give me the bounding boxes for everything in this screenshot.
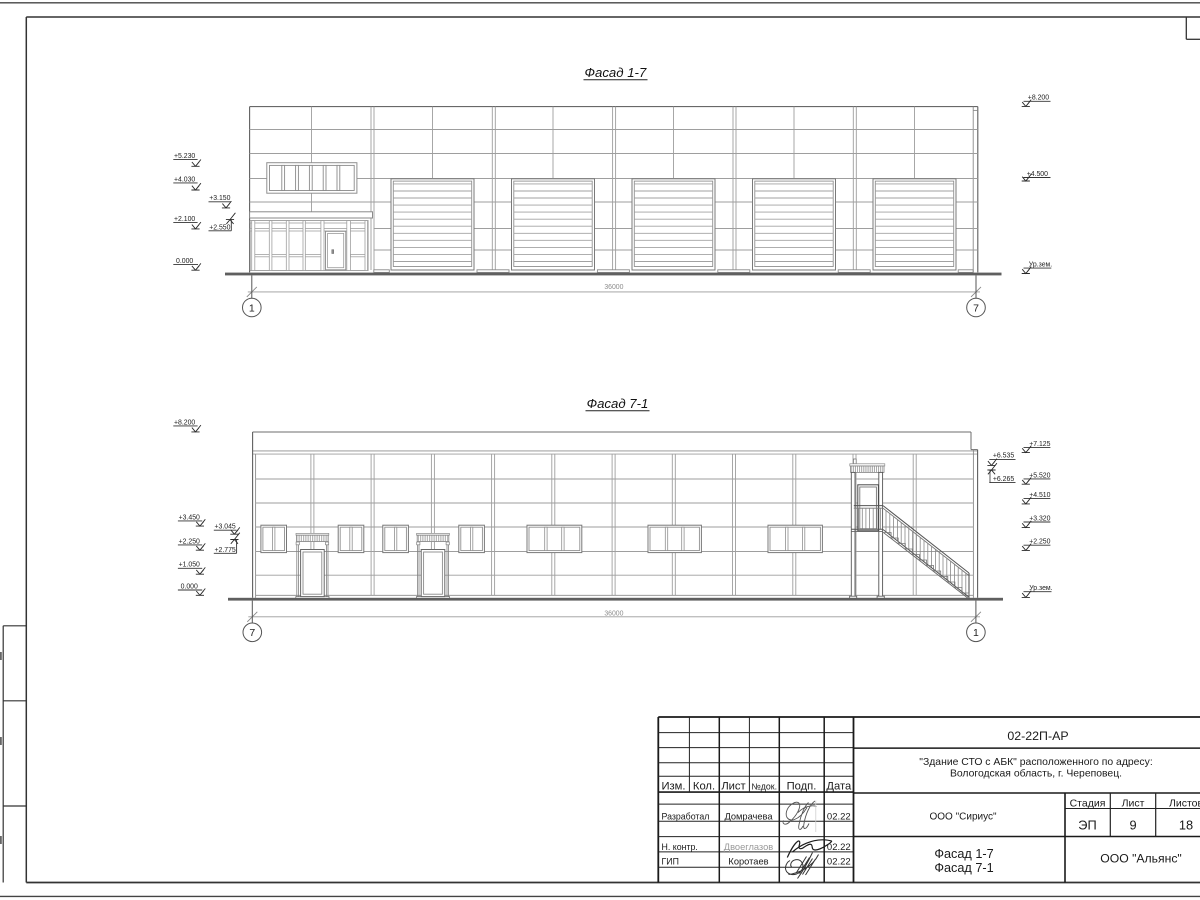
svg-text:Стадия: Стадия [1070,797,1106,809]
svg-text:Фасад 7-1: Фасад 7-1 [587,396,649,411]
svg-text:18: 18 [1179,818,1193,833]
svg-text:+3.450: +3.450 [179,514,200,521]
svg-text:Подп.: Подп. [787,780,817,792]
svg-text:Лист: Лист [1122,797,1145,809]
svg-text:02-22П-АР: 02-22П-АР [1007,729,1068,743]
svg-text:Н. контр.: Н. контр. [662,842,698,852]
svg-text:ЭП: ЭП [1078,818,1096,833]
svg-text:Дата: Дата [826,780,852,792]
svg-text:Листов: Листов [1169,797,1200,809]
svg-text:1: 1 [973,627,979,639]
svg-text:Двоеглазов: Двоеглазов [724,842,773,852]
svg-text:ООО "Альянс": ООО "Альянс" [1100,852,1182,866]
svg-text:№док.: №док. [751,782,777,792]
svg-text:ООО "Сириус": ООО "Сириус" [929,812,997,823]
svg-text:7: 7 [249,627,255,639]
svg-text:Фасад 1-7: Фасад 1-7 [585,65,647,80]
svg-text:Ур.зем.: Ур.зем. [1029,262,1052,269]
svg-text:Ур.зем.: Ур.зем. [1029,585,1052,592]
svg-text:+2.775: +2.775 [215,547,236,554]
svg-text:9: 9 [1129,818,1136,833]
svg-text:Вологодская область, г. Черепо: Вологодская область, г. Череповец. [950,768,1122,780]
svg-text:+5.230: +5.230 [174,153,195,160]
svg-text:+4.510: +4.510 [1029,492,1050,499]
svg-text:7: 7 [973,302,979,314]
svg-text:+4.030: +4.030 [174,176,195,183]
svg-text:36000: 36000 [604,610,623,617]
svg-text:1: 1 [249,302,255,314]
svg-text:+2.250: +2.250 [179,538,200,545]
svg-text:+6.535: +6.535 [993,453,1014,460]
svg-text:+4.500: +4.500 [1027,171,1048,178]
svg-text:+2.250: +2.250 [1029,539,1050,546]
svg-text:+3.150: +3.150 [209,195,230,202]
svg-text:+7.125: +7.125 [1029,441,1050,448]
svg-text:ГИП: ГИП [662,856,679,866]
svg-text:+8.200: +8.200 [174,419,195,426]
svg-text:02.22: 02.22 [827,812,851,823]
svg-text:Кол.: Кол. [693,780,715,792]
svg-text:36000: 36000 [604,284,623,291]
svg-text:Лист: Лист [721,780,745,792]
svg-text:"Здание СТО с АБК" расположенн: "Здание СТО с АБК" расположенного по адр… [919,757,1152,768]
svg-text:+8.200: +8.200 [1028,95,1049,102]
svg-text:+1.050: +1.050 [179,562,200,569]
svg-text:+6.265: +6.265 [993,476,1014,483]
svg-text:Домрачева: Домрачева [724,811,773,821]
svg-text:+2.550: +2.550 [209,224,230,231]
svg-text:+3.045: +3.045 [215,524,236,531]
svg-text:02.22: 02.22 [827,842,851,853]
svg-text:0.000: 0.000 [176,258,193,265]
svg-text:Фасад 7-1: Фасад 7-1 [934,861,993,875]
svg-text:Коротаев: Коротаев [728,857,768,867]
svg-text:Фасад 1-7: Фасад 1-7 [934,847,993,861]
svg-text:02.22: 02.22 [827,856,851,867]
svg-text:0.000: 0.000 [181,583,198,590]
svg-text:Разработал: Разработал [662,811,710,821]
svg-text:+5.520: +5.520 [1029,472,1050,479]
svg-text:+2.100: +2.100 [174,216,195,223]
svg-text:Изм.: Изм. [662,780,686,792]
svg-text:+3.320: +3.320 [1029,515,1050,522]
